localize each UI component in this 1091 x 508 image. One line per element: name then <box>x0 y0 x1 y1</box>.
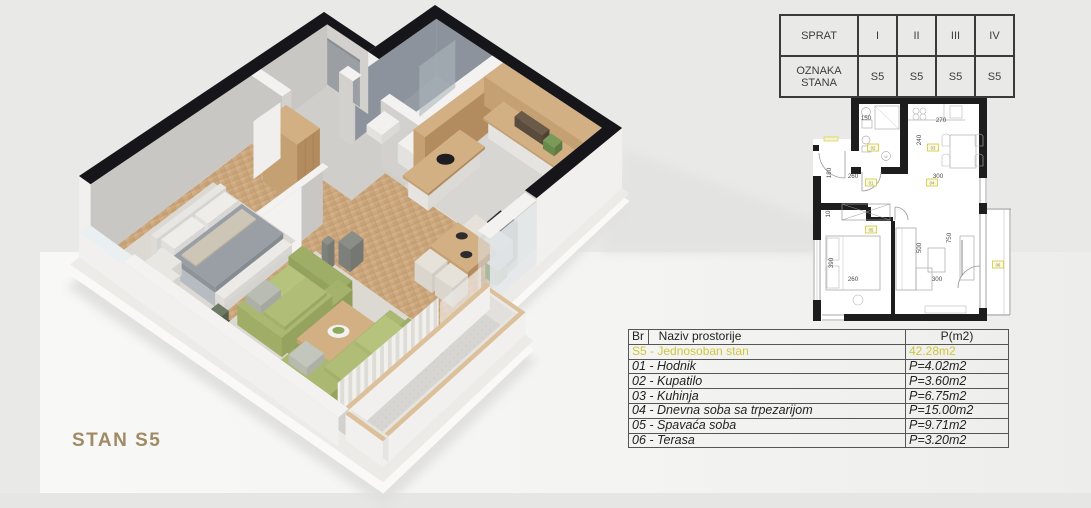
svg-text:10: 10 <box>825 210 832 217</box>
svg-text:500: 500 <box>916 242 923 253</box>
svg-text:390: 390 <box>828 257 835 268</box>
svg-text:240: 240 <box>916 134 923 145</box>
svg-text:150: 150 <box>861 115 872 122</box>
svg-text:750: 750 <box>946 232 953 243</box>
svg-text:260: 260 <box>848 276 859 283</box>
svg-text:180: 180 <box>826 167 833 178</box>
svg-text:270: 270 <box>936 117 947 124</box>
svg-text:05: 05 <box>869 228 874 233</box>
svg-text:01: 01 <box>869 181 874 186</box>
svg-text:06: 06 <box>996 263 1001 268</box>
svg-text:02: 02 <box>871 146 876 151</box>
svg-text:300: 300 <box>932 276 943 283</box>
svg-text:260: 260 <box>848 173 859 180</box>
svg-text:03: 03 <box>931 146 936 151</box>
svg-text:04: 04 <box>930 181 935 186</box>
